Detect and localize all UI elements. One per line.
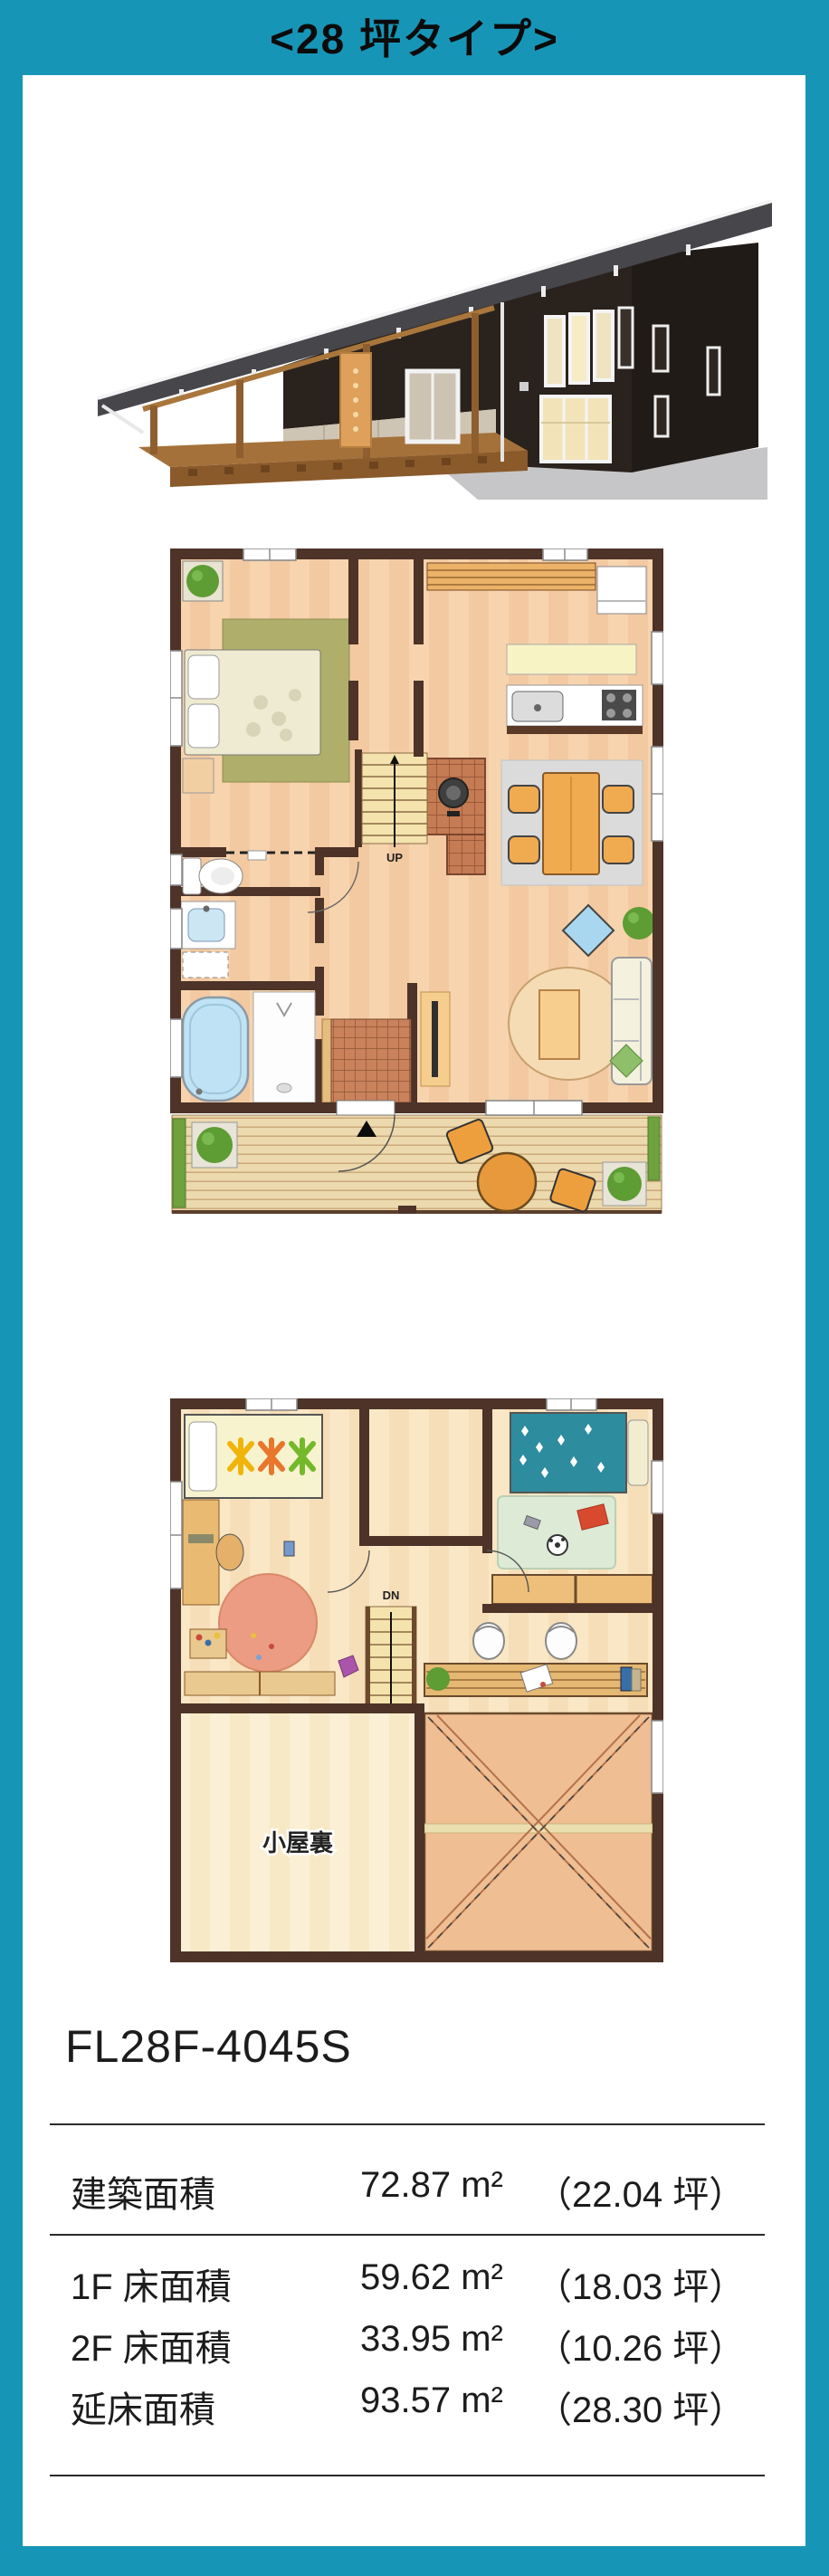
spec-tsubo-value: （22.04 坪） xyxy=(536,2165,745,2218)
doll-toy xyxy=(284,1541,294,1556)
divider xyxy=(50,2475,765,2476)
bedside-table xyxy=(183,758,214,793)
spec-row-1f-area: 1F 床面積 59.62 m² （18.03 坪） xyxy=(0,2257,829,2308)
refrigerator xyxy=(597,567,646,614)
house-exterior-render xyxy=(52,110,777,500)
teal-bed xyxy=(510,1413,626,1493)
facade-slim-window xyxy=(619,308,633,367)
flower-pattern xyxy=(230,1440,313,1473)
bathtub-icon xyxy=(183,997,248,1101)
kids-desk xyxy=(183,1500,219,1605)
page-title: <28 坪タイプ> xyxy=(0,9,829,69)
chair xyxy=(509,836,539,863)
upper-windows xyxy=(546,311,613,386)
house-side-facade xyxy=(632,243,758,472)
chair xyxy=(603,836,634,863)
deck-step xyxy=(398,1206,416,1214)
plant-icon xyxy=(623,907,655,940)
void-open-ceiling xyxy=(424,1713,653,1951)
spec-row-building-area: 建築面積 72.87 m² （22.04 坪） xyxy=(0,2165,829,2216)
wall-vent xyxy=(519,382,529,391)
divider xyxy=(50,2234,765,2236)
chair xyxy=(603,786,634,813)
pink-round-rug xyxy=(219,1574,317,1672)
spec-area-value: 93.57 m² xyxy=(360,2380,503,2421)
spec-row-2f-area: 2F 床面積 33.95 m² （10.26 坪） xyxy=(0,2319,829,2370)
attic-label: 小屋裏 xyxy=(262,1829,334,1856)
spec-label: 延床面積 xyxy=(71,2380,215,2433)
page: { "header": { "title": "<28 坪タイプ>" }, "m… xyxy=(0,0,829,2576)
spec-tsubo-value: （18.03 坪） xyxy=(536,2257,745,2310)
washroom xyxy=(181,902,235,978)
spec-area-value: 72.87 m² xyxy=(360,2165,503,2206)
spec-area-value: 59.62 m² xyxy=(360,2257,503,2298)
pillow xyxy=(189,1422,216,1491)
desk-chair xyxy=(216,1534,243,1570)
entry-step xyxy=(322,1019,331,1102)
spec-area-value: 33.95 m² xyxy=(360,2319,503,2360)
closet xyxy=(492,1575,653,1604)
sofa xyxy=(610,958,652,1084)
cooktop-icon xyxy=(602,690,636,720)
floor-plan-2f: DN 小屋裏 xyxy=(170,1398,663,1962)
entry-door xyxy=(337,1101,395,1115)
entry-tile xyxy=(331,1019,411,1102)
pillow xyxy=(628,1420,648,1485)
spec-tsubo-value: （28.30 坪） xyxy=(536,2380,745,2433)
counter-bar xyxy=(427,563,596,590)
kitchen-back-counter xyxy=(507,644,636,674)
bed xyxy=(185,650,320,755)
divider xyxy=(50,2123,765,2125)
washing-machine xyxy=(183,952,228,978)
spec-label: 建築面積 xyxy=(71,2165,215,2218)
chair xyxy=(509,786,539,813)
model-code: FL28F-4045S xyxy=(65,2020,352,2073)
stairs-up xyxy=(355,749,427,847)
dn-label: DN xyxy=(383,1589,400,1602)
tv-icon xyxy=(432,1001,438,1077)
spec-label: 1F 床面積 xyxy=(71,2257,232,2310)
deck-table xyxy=(478,1153,536,1211)
chair xyxy=(546,1623,576,1659)
planter-strip-left xyxy=(173,1119,186,1207)
up-label: UP xyxy=(386,851,403,864)
large-lit-window xyxy=(541,396,610,462)
dining-set xyxy=(501,760,643,885)
chair xyxy=(473,1623,504,1659)
tv-board xyxy=(421,992,450,1086)
spec-row-total-area: 延床面積 93.57 m² （28.30 坪） xyxy=(0,2380,829,2431)
wood-deck xyxy=(172,1115,662,1214)
entrance xyxy=(322,1019,411,1102)
plant-icon xyxy=(186,565,219,597)
spec-label: 2F 床面積 xyxy=(71,2319,232,2371)
gutter-icon xyxy=(102,405,143,433)
spec-tsubo-value: （10.26 坪） xyxy=(536,2319,745,2371)
floor-plan-1f: UP xyxy=(170,549,663,1218)
plant-icon xyxy=(426,1667,450,1691)
coffee-table xyxy=(539,990,579,1059)
planter-strip-right xyxy=(648,1117,660,1180)
